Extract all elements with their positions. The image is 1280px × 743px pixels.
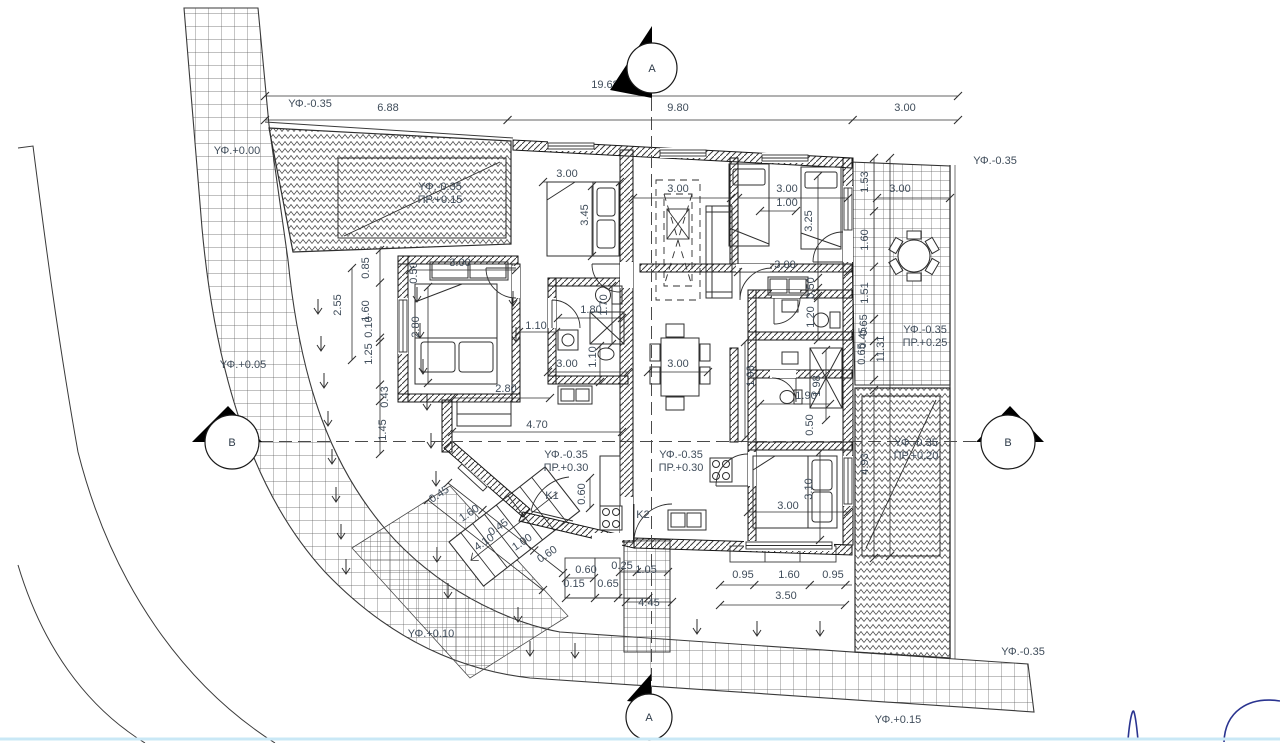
dimension-label: 0.50 xyxy=(804,414,816,435)
dimension-label: 0.65 xyxy=(597,578,618,590)
dimension-label: 1.20 xyxy=(805,306,817,327)
elevation-label: ΥΦ.-0.35 xyxy=(973,155,1017,167)
wall-bath-r-m2 xyxy=(748,370,852,378)
round-table xyxy=(898,240,930,272)
elevation-label: ΥΦ.+0.00 xyxy=(214,145,260,157)
elevation-label: ΠΡ.+0.25 xyxy=(903,337,948,349)
dimension-label: 3.00 xyxy=(776,183,797,195)
dimension-label: 4.70 xyxy=(526,419,547,431)
elevation-label: ΥΦ.-0.35 xyxy=(288,98,332,110)
dimension-label: 3.50 xyxy=(775,590,796,602)
dimension-label: 1.10 xyxy=(587,346,599,367)
elevation-label: ΥΦ.-0.35 xyxy=(544,449,588,461)
wall-kids-divider xyxy=(730,158,738,264)
room-label: K2 xyxy=(636,509,649,521)
dimension-label: 0.65 xyxy=(856,343,868,364)
dimension-label: 1.60 xyxy=(859,229,871,250)
dimension-label: 3.00 xyxy=(894,102,915,114)
wall-spine xyxy=(620,150,633,542)
dimension-label: 3.00 xyxy=(556,168,577,180)
wall-bath-r-w xyxy=(748,290,756,545)
dimension-label: 3.45 xyxy=(579,204,591,225)
dimension-label: 0.95 xyxy=(822,569,843,581)
elevation-label: ΠΡ.+0.15 xyxy=(418,194,463,206)
dimension-label: 3.00 xyxy=(667,358,688,370)
elevation-label: ΥΦ.+0.05 xyxy=(220,359,266,371)
parking-hatch xyxy=(269,128,511,252)
dimension-label: 1.60 xyxy=(778,569,799,581)
dimension-label: 0.50 xyxy=(805,277,817,298)
dimension-label: 1.98 xyxy=(811,375,823,396)
dimension-label: 6.88 xyxy=(377,102,398,114)
elevation-label: ΥΦ.-0.35 xyxy=(903,324,947,336)
dimension-label: 1.53 xyxy=(859,171,871,192)
parking-hatch-2 xyxy=(855,388,950,658)
terrace-chair xyxy=(907,273,921,281)
parking-area-southeast xyxy=(855,388,950,658)
dimension-label: 1.05 xyxy=(635,564,656,576)
dimension-label: 11.31 xyxy=(875,336,887,363)
dimension-label: 0.43 xyxy=(379,386,391,407)
dimension-label: 4.93 xyxy=(859,453,871,474)
elevation-label: ΥΦ.-0.35 xyxy=(894,437,938,449)
dimension-label: 3.00 xyxy=(449,257,470,269)
dimension-label: 3.00 xyxy=(774,259,795,271)
dimension-label: 0.15 xyxy=(563,578,584,590)
dimension-label: 1.25 xyxy=(363,343,375,364)
wall-dining-e xyxy=(730,348,738,442)
floor-plan-viewport: 19.686.889.803.003.000.503.003.453.003.0… xyxy=(0,0,1280,743)
elevation-label: ΥΦ.-0.35 xyxy=(418,181,462,193)
dimension-label: 1.45 xyxy=(377,419,389,440)
elevation-label: ΥΦ.+0.10 xyxy=(408,628,454,640)
dimension-label: 1.00 xyxy=(776,197,797,209)
dimension-label: 0.50 xyxy=(408,262,420,283)
dimension-label: 3.00 xyxy=(667,183,688,195)
dimension-label: 2.80 xyxy=(410,316,422,337)
wall-bath-l-s xyxy=(548,376,628,384)
section-marker-letter: A xyxy=(648,63,656,75)
room-label: K1 xyxy=(545,490,558,502)
dimension-label: 1.70 xyxy=(598,294,610,315)
dimension-label: 1.51 xyxy=(859,282,871,303)
elevation-label: ΥΦ.+0.15 xyxy=(875,714,921,726)
elevation-label: ΠΡ.+0.20 xyxy=(894,450,939,462)
elevation-label: ΠΡ.+0.30 xyxy=(544,462,589,474)
section-marker-letter: B xyxy=(1004,437,1011,449)
dimension-label: 3.10 xyxy=(803,478,815,499)
section-marker-letter: A xyxy=(645,712,653,724)
parking-area-northwest xyxy=(269,128,511,252)
wall-bedroom-se-n xyxy=(748,442,852,450)
dimension-label: 0.60 xyxy=(576,483,588,504)
dimension-label: 3.00 xyxy=(556,358,577,370)
floor-plan-canvas: 19.686.889.803.003.000.503.003.453.003.0… xyxy=(0,0,1280,743)
dimension-label: 0.25 xyxy=(611,560,632,572)
elevation-label: ΥΦ.-0.35 xyxy=(659,449,703,461)
terrace-chair xyxy=(907,231,921,239)
elevation-label: ΠΡ.+0.30 xyxy=(659,462,704,474)
dimension-label: 1.10 xyxy=(525,320,546,332)
dimension-label: 1.98 xyxy=(745,365,757,386)
dimension-label: 3.25 xyxy=(803,210,815,231)
dimension-label: 0.10 xyxy=(363,316,375,337)
dimension-label: 0.85 xyxy=(360,257,372,278)
dimension-label: 9.80 xyxy=(667,102,688,114)
wall-bath-r-m1 xyxy=(748,332,852,340)
dimension-label: 0.95 xyxy=(732,569,753,581)
dimension-label: 4.45 xyxy=(638,597,659,609)
elevation-label: ΥΦ.-0.35 xyxy=(1001,646,1045,658)
dimension-label: 2.80 xyxy=(495,383,516,395)
dimension-label: 2.55 xyxy=(332,294,344,315)
dimension-label: 0.60 xyxy=(575,564,596,576)
dimension-label: 3.00 xyxy=(777,500,798,512)
entry-walkway-center xyxy=(624,540,670,652)
section-marker-letter: B xyxy=(228,437,235,449)
dimension-label: 3.00 xyxy=(889,183,910,195)
